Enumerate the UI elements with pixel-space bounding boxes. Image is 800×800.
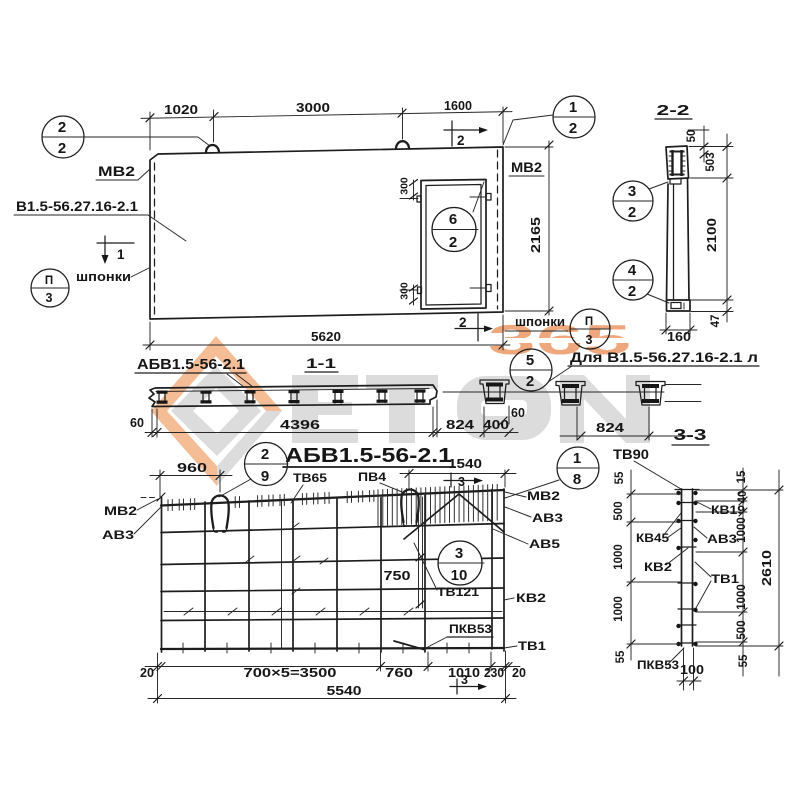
svg-text:АВ3: АВ3 [102, 530, 134, 542]
svg-text:1000: 1000 [613, 596, 625, 622]
svg-text:160: 160 [667, 330, 691, 344]
svg-text:960: 960 [177, 461, 207, 475]
svg-text:ТВ1: ТВ1 [711, 574, 740, 586]
svg-text:1020: 1020 [164, 103, 198, 117]
svg-text:8: 8 [573, 471, 581, 488]
svg-text:П: П [45, 275, 53, 287]
svg-text:3: 3 [586, 333, 593, 347]
svg-text:2100: 2100 [705, 218, 719, 252]
svg-text:2: 2 [457, 133, 465, 148]
svg-text:503: 503 [705, 152, 717, 171]
svg-text:ПКВ53: ПКВ53 [449, 624, 492, 636]
svg-text:АВ5: АВ5 [529, 539, 561, 551]
svg-text:20: 20 [512, 666, 526, 680]
svg-text:2: 2 [628, 204, 636, 221]
svg-text:2: 2 [449, 234, 457, 251]
svg-text:ПВ4: ПВ4 [358, 472, 387, 484]
svg-text:ПКВ53: ПКВ53 [637, 660, 679, 672]
svg-text:5: 5 [526, 352, 534, 369]
svg-text:3: 3 [461, 673, 468, 687]
svg-text:55: 55 [738, 654, 750, 667]
svg-text:1-1: 1-1 [306, 356, 337, 371]
svg-text:АВ3: АВ3 [532, 513, 563, 525]
svg-text:3: 3 [628, 183, 636, 200]
svg-text:40: 40 [737, 491, 749, 504]
svg-text:100: 100 [680, 663, 704, 677]
svg-text:3: 3 [46, 291, 53, 305]
svg-text:50: 50 [686, 130, 698, 143]
svg-text:1600: 1600 [444, 99, 472, 113]
svg-text:47: 47 [710, 315, 722, 328]
svg-text:АБВ1.5-56-2.1: АБВ1.5-56-2.1 [137, 356, 245, 373]
svg-text:МВ2: МВ2 [98, 164, 135, 179]
svg-text:760: 760 [385, 666, 413, 680]
svg-text:3000: 3000 [296, 101, 330, 115]
svg-text:1: 1 [117, 247, 125, 262]
svg-text:2: 2 [569, 120, 577, 137]
svg-text:9: 9 [261, 468, 269, 485]
svg-text:АБВ1.5-56-2.1: АБВ1.5-56-2.1 [285, 445, 452, 467]
svg-text:500: 500 [736, 620, 748, 639]
svg-text:230: 230 [484, 666, 504, 680]
svg-text:КВ45: КВ45 [636, 533, 670, 545]
svg-text:1: 1 [573, 450, 581, 467]
svg-text:2: 2 [261, 446, 269, 463]
svg-text:МВ2: МВ2 [104, 506, 137, 518]
svg-text:МВ2: МВ2 [511, 160, 542, 175]
svg-text:ТВ65: ТВ65 [293, 473, 328, 485]
svg-text:60: 60 [130, 416, 144, 430]
svg-text:5540: 5540 [327, 684, 362, 698]
svg-text:15: 15 [736, 470, 748, 483]
svg-text:55: 55 [614, 471, 626, 484]
svg-text:3: 3 [455, 545, 463, 562]
svg-text:824: 824 [446, 418, 474, 432]
svg-text:824: 824 [596, 421, 624, 435]
svg-text:В1.5-56.27.16-2.1: В1.5-56.27.16-2.1 [16, 199, 139, 214]
svg-text:АВ3: АВ3 [707, 534, 737, 546]
svg-text:ТВ90: ТВ90 [613, 447, 649, 462]
svg-text:1: 1 [569, 99, 577, 116]
svg-text:55: 55 [615, 650, 627, 663]
svg-text:П: П [585, 316, 593, 328]
svg-text:20: 20 [140, 666, 154, 680]
svg-text:КВ19: КВ19 [711, 505, 745, 517]
svg-text:3-3: 3-3 [674, 427, 707, 444]
svg-text:2610: 2610 [760, 550, 774, 586]
svg-text:6: 6 [449, 211, 457, 228]
svg-text:4: 4 [628, 262, 637, 279]
svg-text:2: 2 [459, 315, 467, 330]
svg-text:500: 500 [613, 501, 625, 520]
svg-text:300: 300 [399, 282, 411, 300]
svg-text:ТВ1: ТВ1 [518, 641, 547, 653]
svg-text:4396: 4396 [280, 418, 320, 432]
svg-text:1000: 1000 [736, 517, 748, 543]
svg-text:1000: 1000 [613, 544, 625, 570]
svg-text:Для В1.5-56.27.16-2.1 л: Для В1.5-56.27.16-2.1 л [570, 350, 758, 365]
svg-text:МВ2: МВ2 [527, 491, 560, 503]
svg-text:2: 2 [58, 119, 66, 136]
svg-text:5620: 5620 [311, 330, 341, 344]
svg-text:ТВ121: ТВ121 [437, 587, 480, 599]
svg-text:700×5=3500: 700×5=3500 [244, 666, 337, 680]
svg-text:2: 2 [526, 373, 534, 390]
svg-text:КВ2: КВ2 [516, 593, 546, 605]
svg-text:1540: 1540 [448, 457, 482, 471]
svg-text:1000: 1000 [736, 584, 748, 610]
svg-text:2-2: 2-2 [657, 102, 690, 119]
svg-text:60: 60 [511, 406, 525, 420]
svg-text:2: 2 [628, 283, 636, 300]
svg-text:300: 300 [399, 177, 411, 195]
svg-text:шпонки: шпонки [515, 315, 565, 329]
svg-text:750: 750 [384, 569, 411, 583]
svg-text:шпонки: шпонки [76, 270, 131, 284]
svg-text:2165: 2165 [529, 217, 543, 253]
svg-text:400: 400 [483, 418, 509, 432]
svg-text:10: 10 [451, 567, 468, 584]
svg-text:2: 2 [58, 140, 66, 157]
